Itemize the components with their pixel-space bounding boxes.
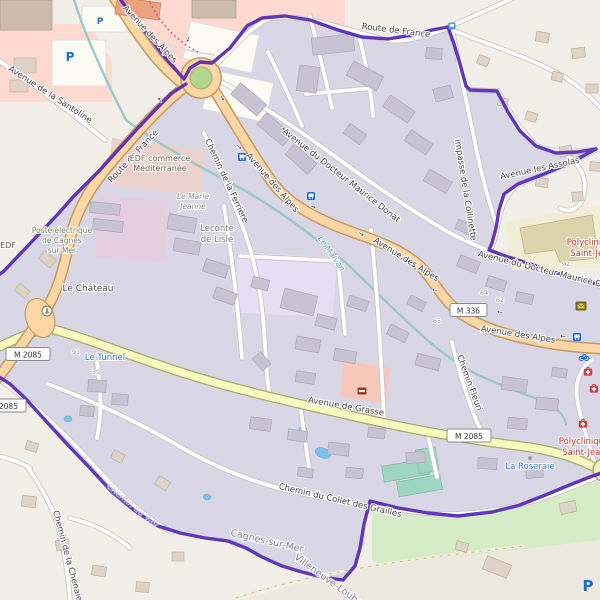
post-box-icon [576, 302, 587, 311]
poi-label-edf-commerce: Méditerranée [133, 163, 187, 173]
svg-text:M 2085: M 2085 [455, 432, 483, 441]
poi-label-leconte: Leconte [200, 224, 234, 234]
poi-label-poste-electrique: Poste électrique [32, 226, 93, 235]
svg-text:→: → [560, 332, 567, 340]
poi-label-polyclinique: Saint-Jean [562, 448, 600, 458]
parking-icon: P [97, 17, 104, 27]
poi-label-le-tunnel: Le Tunnel [85, 353, 125, 363]
poi-label-le-chateau: Le Château [62, 284, 113, 294]
garden-icon [528, 456, 532, 460]
parking-icon: P [583, 577, 594, 595]
svg-text:62: 62 [496, 296, 504, 304]
svg-text:91: 91 [72, 348, 80, 356]
svg-text:39: 39 [92, 368, 100, 376]
svg-text:92: 92 [562, 260, 570, 268]
shield-m336: M 336 [450, 304, 487, 317]
poi-label-edf: EDF [0, 241, 16, 250]
poi-label-polyclinique: Saint-Jean [570, 249, 600, 259]
poi-label-marie-jeanne: Jeanne [178, 202, 206, 211]
poi-label-marie-jeanne: Le Marie [177, 192, 209, 201]
svg-text:M 2085: M 2085 [0, 402, 18, 411]
shield-m2085: M 2085 [447, 429, 491, 442]
poi-label-polyclinique: Polyclinique [559, 437, 600, 447]
svg-text:M 336: M 336 [457, 307, 480, 316]
shield-m2085: M 2085 [6, 348, 50, 361]
map-canvas[interactable]: P P P → → [0, 0, 600, 600]
svg-text:64: 64 [480, 289, 488, 297]
roundabout-green [191, 68, 212, 89]
parking-icon: P [66, 50, 75, 64]
poi-label-la-roseraie: La Roseraie [505, 462, 554, 472]
shield-m2085: M 2085 [0, 399, 26, 412]
svg-text:65: 65 [433, 317, 441, 325]
poi-label-poste-electrique: sur Mer [48, 246, 77, 255]
poi-label-polyclinique: Polyclinique [567, 238, 600, 248]
fire-station-icon [358, 388, 367, 395]
svg-text:M 2085: M 2085 [14, 351, 42, 360]
poi-label-edf-commerce: EDF commerce [130, 154, 191, 163]
poi-label-leconte: de Lisle [201, 235, 233, 245]
poi-label-poste-electrique: de Cagnes [42, 236, 82, 245]
monument-icon [42, 306, 52, 316]
map[interactable]: P P P → → [0, 0, 600, 600]
